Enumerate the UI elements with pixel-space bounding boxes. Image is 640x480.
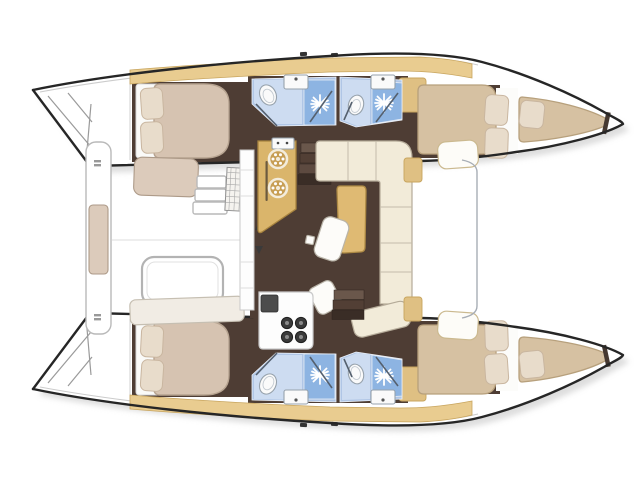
trampoline-edge xyxy=(462,160,477,318)
oven xyxy=(261,295,278,312)
catamaran-floorplan xyxy=(0,0,640,480)
head-sink xyxy=(284,75,308,89)
aft-cabin-bed xyxy=(136,84,229,158)
pillow xyxy=(484,94,509,126)
galley-top-unit xyxy=(272,138,294,149)
cockpit xyxy=(86,142,253,334)
foredeck xyxy=(437,140,479,341)
faucet-dot xyxy=(294,77,297,80)
foredeck-locker xyxy=(437,311,479,341)
faucet-dot xyxy=(381,77,384,80)
cockpit-bottom-bench xyxy=(130,296,245,325)
saloon xyxy=(240,138,422,349)
forward-head xyxy=(340,75,402,127)
floorplan-svg xyxy=(0,0,640,480)
companionway-steps-starboard xyxy=(332,290,364,320)
aft-bench-cushion xyxy=(89,205,108,274)
pillow xyxy=(519,100,546,129)
starboard-hull xyxy=(33,312,623,427)
table-leg xyxy=(305,235,314,244)
cockpit-steps xyxy=(193,176,227,214)
stove-counter xyxy=(259,292,313,349)
cleat xyxy=(300,52,307,56)
pillow xyxy=(140,121,164,153)
cockpit-side-bench xyxy=(133,157,198,197)
saloon-cabinet xyxy=(404,297,422,321)
saloon-cabinet xyxy=(404,158,422,182)
head-sink xyxy=(371,75,395,89)
pillow xyxy=(140,87,164,119)
fridge-handle xyxy=(266,161,268,201)
double-round-sink xyxy=(269,150,287,168)
